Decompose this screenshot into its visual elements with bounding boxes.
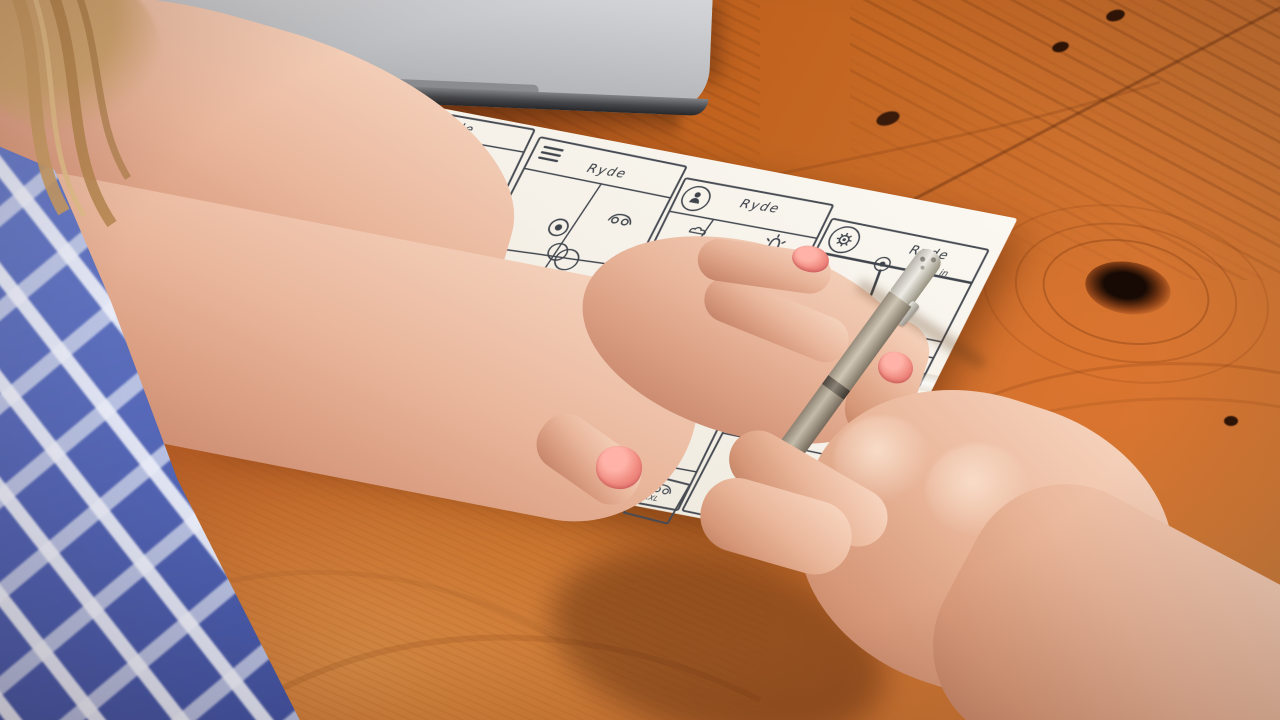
hair-strands	[0, 0, 240, 300]
hamburger-icon	[539, 147, 562, 161]
pin-icon	[872, 256, 893, 272]
car-icon	[608, 213, 634, 226]
gear-icon	[834, 232, 853, 247]
person-icon	[689, 191, 704, 203]
cloud-icon	[689, 226, 706, 234]
wood-pore	[1224, 416, 1238, 426]
photo-scene: Ryde luxury sedan 2 min away Ryde	[0, 0, 1280, 720]
